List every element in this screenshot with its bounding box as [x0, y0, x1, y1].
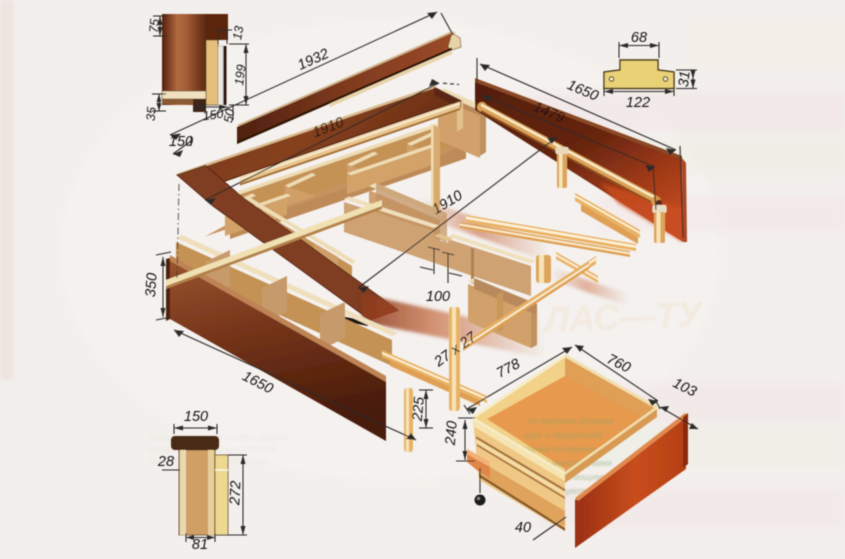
- svg-text:350: 350: [143, 272, 161, 297]
- svg-text:50: 50: [221, 108, 237, 124]
- svg-text:28: 28: [157, 454, 174, 470]
- svg-text:81: 81: [192, 537, 208, 553]
- svg-text:122: 122: [626, 95, 650, 111]
- svg-text:100: 100: [426, 289, 450, 305]
- svg-text:40: 40: [515, 520, 531, 536]
- svg-text:225: 225: [410, 395, 428, 422]
- svg-text:31: 31: [676, 70, 694, 88]
- svg-text:199: 199: [232, 64, 248, 86]
- svg-text:68: 68: [631, 30, 647, 46]
- svg-text:150: 150: [184, 409, 208, 425]
- svg-text:13: 13: [230, 25, 246, 41]
- svg-text:35: 35: [144, 106, 159, 121]
- svg-text:царг и продольной: царг и продольной: [524, 430, 602, 440]
- svg-text:по верхним кромкам: по верхним кромкам: [528, 416, 614, 426]
- svg-text:стенки основания: стенки основания: [522, 444, 596, 454]
- svg-text:240: 240: [443, 420, 461, 447]
- svg-text:75: 75: [147, 18, 162, 33]
- svg-text:272: 272: [227, 480, 244, 506]
- svg-text:150: 150: [169, 134, 193, 150]
